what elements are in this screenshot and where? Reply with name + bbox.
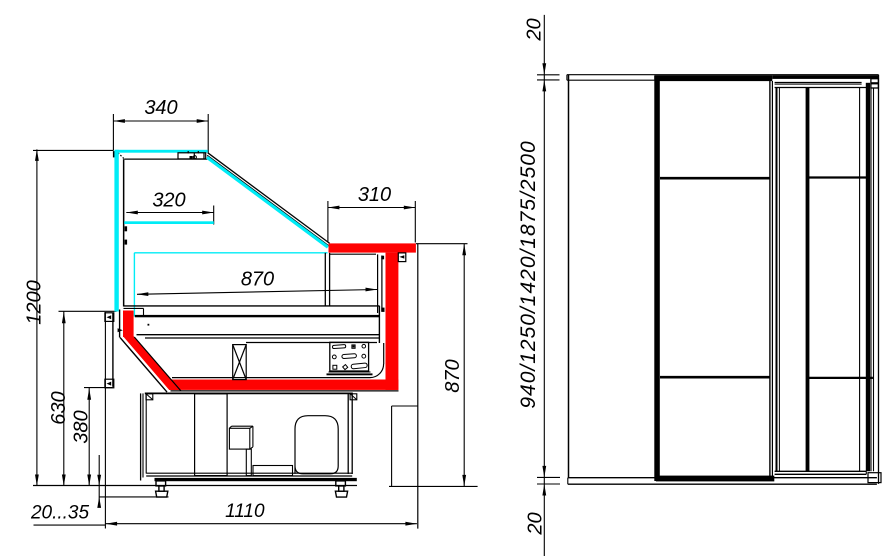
svg-text:20...35: 20...35	[30, 503, 90, 524]
svg-text:870: 870	[442, 359, 464, 392]
svg-text:630: 630	[48, 391, 70, 424]
svg-text:1200: 1200	[24, 280, 46, 325]
svg-text:340: 340	[144, 97, 177, 119]
svg-text:20: 20	[525, 512, 547, 535]
svg-text:1110: 1110	[225, 501, 265, 522]
svg-text:310: 310	[358, 184, 391, 206]
svg-text:940/1250/1420/1875/2500: 940/1250/1420/1875/2500	[517, 140, 540, 408]
svg-text:320: 320	[152, 190, 185, 212]
svg-text:870: 870	[241, 269, 274, 291]
svg-text:20: 20	[524, 18, 546, 41]
svg-text:380: 380	[71, 410, 93, 443]
